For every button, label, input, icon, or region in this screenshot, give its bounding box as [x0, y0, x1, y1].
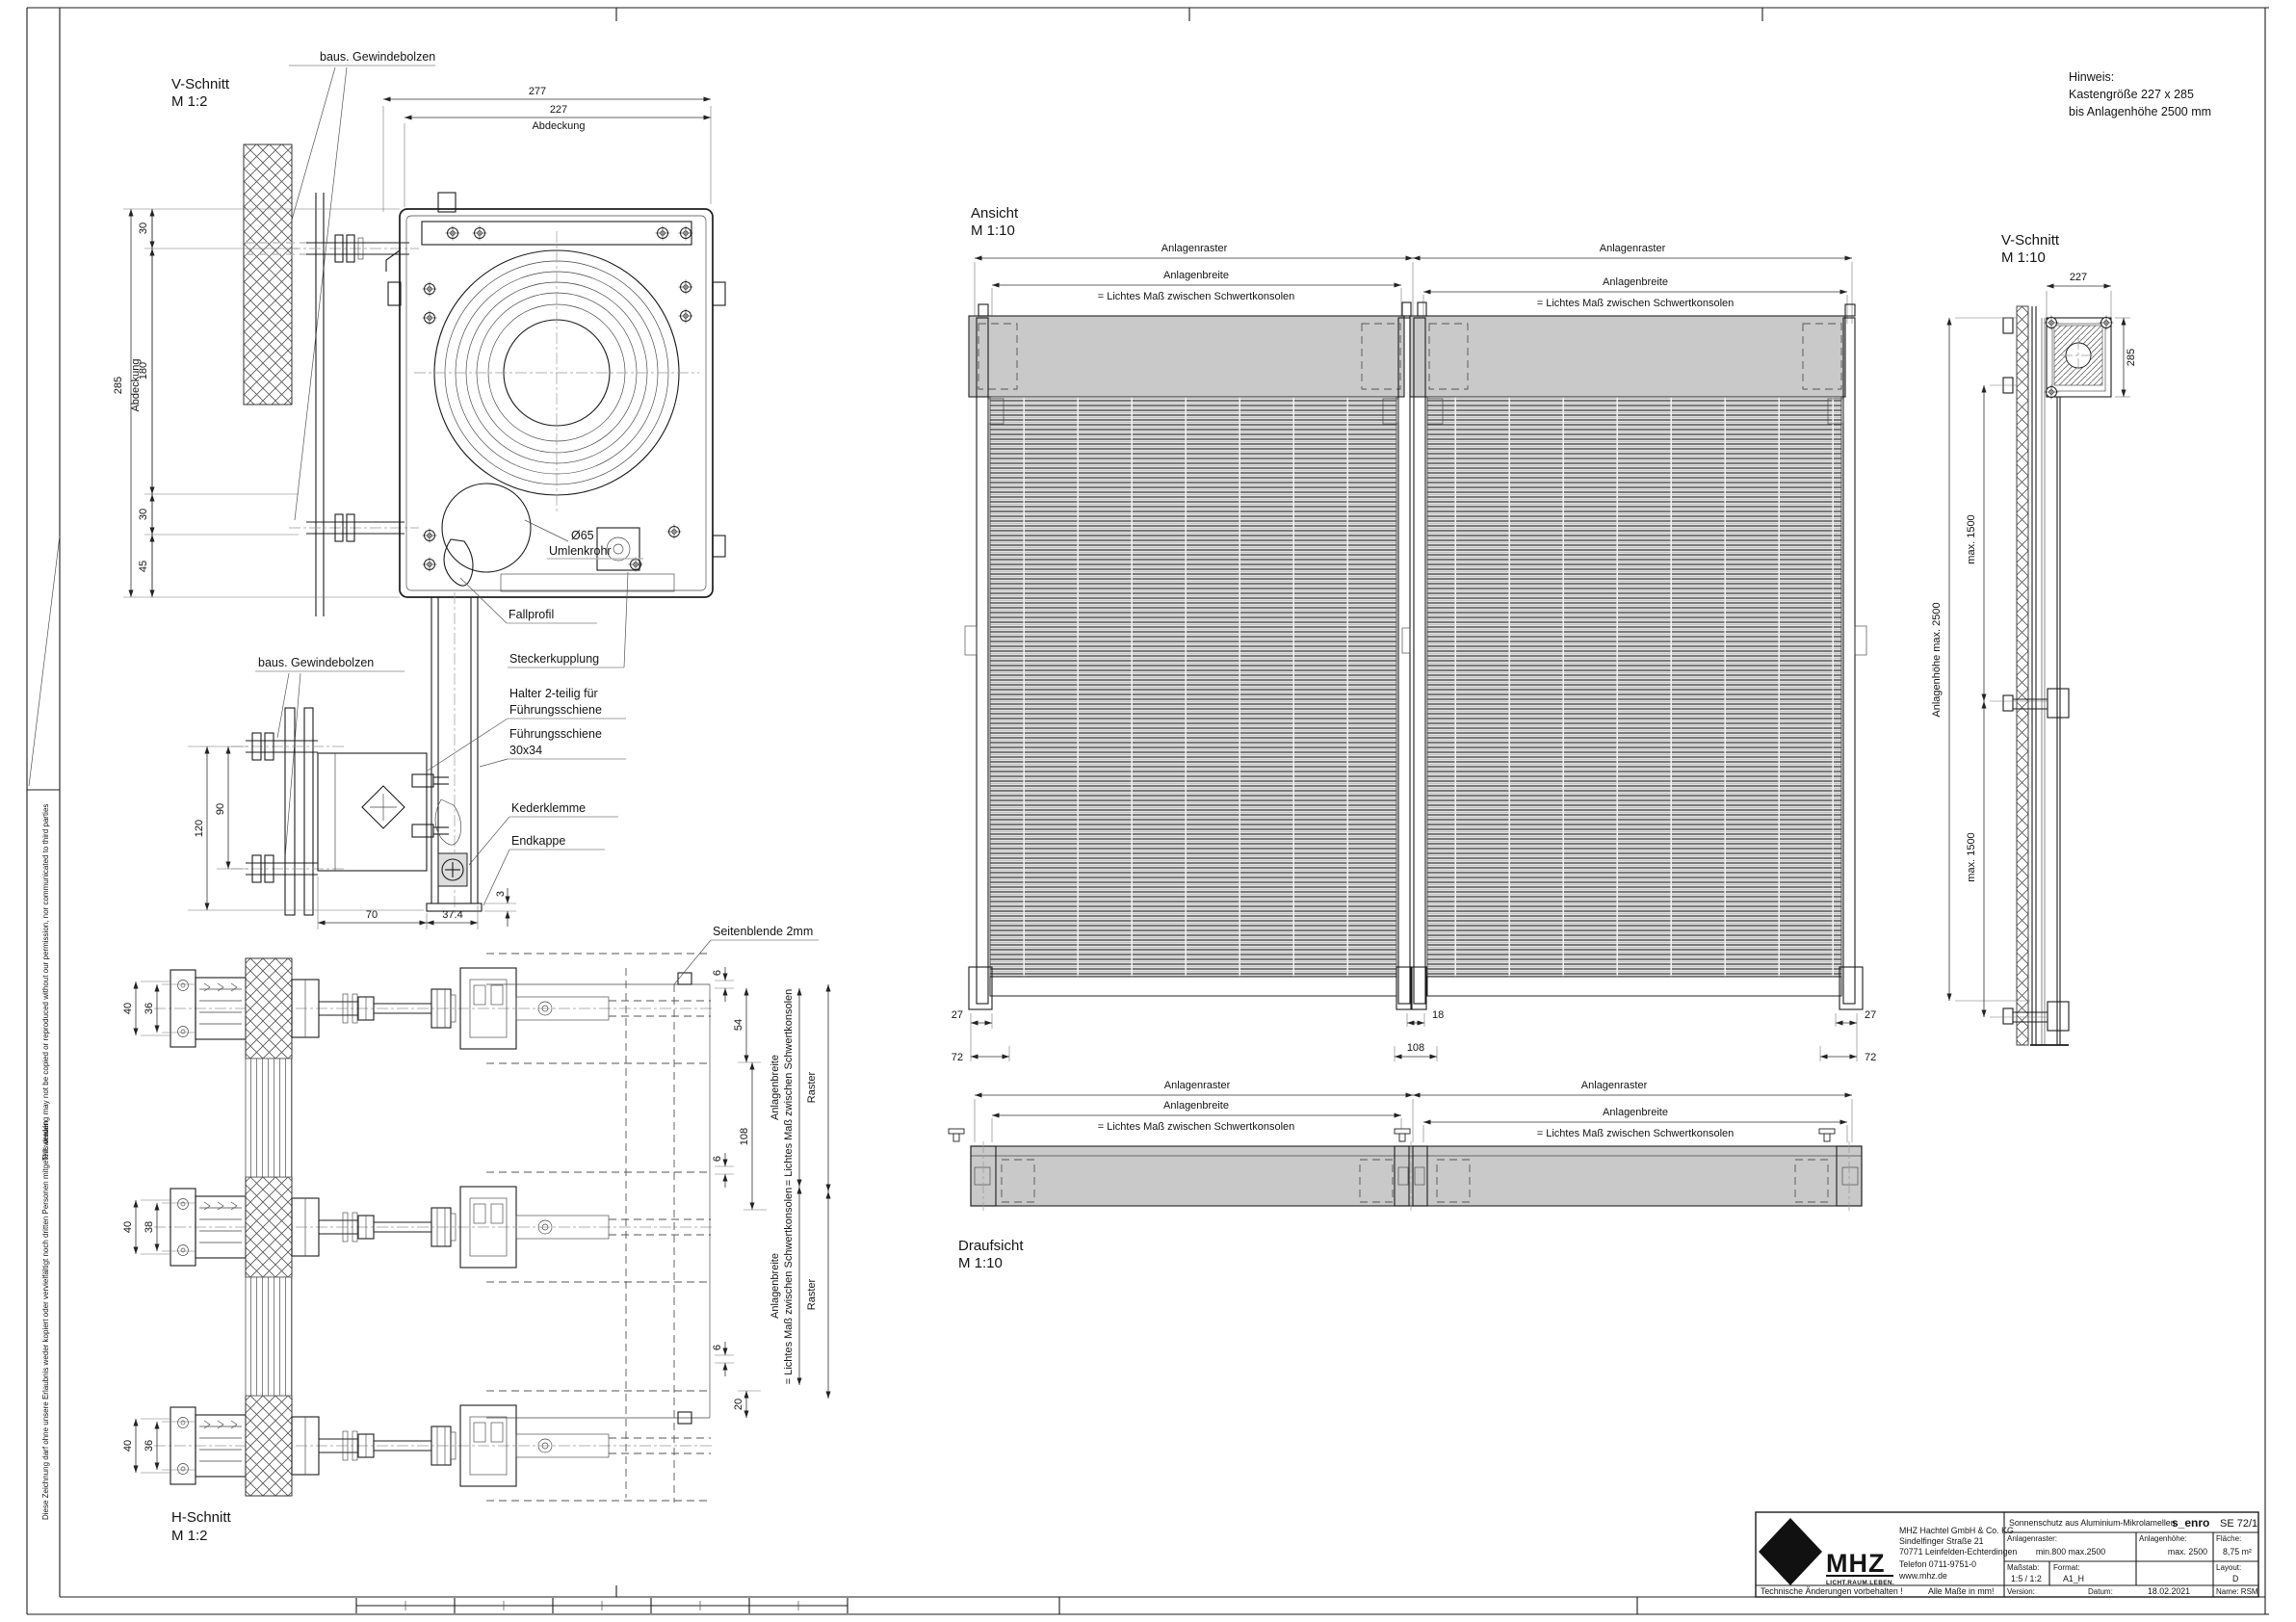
lamellen-screen-right [1427, 397, 1841, 977]
anlagenraster-value: min.800 max.2500 [2036, 1547, 2105, 1557]
dim-text: 108 [1407, 1042, 1424, 1054]
dim-text: 108 [739, 1128, 750, 1145]
view-scale: M 1:2 [171, 93, 208, 110]
view-scale: M 1:2 [171, 1528, 208, 1544]
dim-text: 6 [712, 1156, 723, 1162]
kasten-box-v110 [2045, 316, 2114, 400]
datum-label: Datum: [2088, 1587, 2113, 1596]
dim-anlagenhoehe: Anlagenhöhe max. 2500 [1931, 318, 2030, 1001]
massstab-label: Maßstab: [2007, 1563, 2039, 1572]
dim-text: 36 [143, 1440, 155, 1452]
dim-227-abdeckung: 227 Abdeckung [404, 104, 711, 207]
label-gewindebolzen: baus. Gewindebolzen [320, 50, 435, 64]
product-number: SE 72/1 [2220, 1518, 2257, 1530]
dim-text: = Lichtes Maß zwischen Schwertkonsolen [1098, 291, 1295, 302]
mhz-logo-tagline: LICHT.RAUM.LEBEN. [1826, 1580, 1894, 1586]
company-line: MHZ Hachtel GmbH & Co. KG [1899, 1526, 2014, 1535]
dim-227-v110: 227 [2047, 272, 2111, 318]
dim-text: 6 [712, 1345, 723, 1350]
company-link: www.mhz.de [1898, 1571, 1947, 1581]
layout-value: D [2232, 1574, 2238, 1583]
dim-text: 18 [1432, 1009, 1444, 1021]
dim-text: 70 [366, 909, 378, 921]
version-label: Version: [2007, 1587, 2035, 1596]
dim-text: = Lichtes Maß zwischen Schwertkonsolen [783, 1188, 795, 1385]
notice-text: Technische Änderungen vorbehalten ! [1761, 1586, 1903, 1596]
view-scale: M 1:10 [2001, 249, 2046, 266]
dim-text: 277 [529, 86, 546, 97]
label-seitenblende: Seitenblende 2mm [713, 925, 813, 938]
dim-text: 120 [194, 820, 205, 837]
dim-text: 20 [733, 1399, 744, 1410]
dim-text: 30 [138, 222, 149, 234]
dim-text: 40 [122, 1221, 134, 1233]
dim-text: Anlagenraster [1161, 243, 1228, 254]
dim-text: 54 [733, 1019, 744, 1031]
dim-text: 3 [495, 891, 507, 897]
dim-text: 37.4 [442, 909, 462, 921]
dim-text: Anlagenraster [1581, 1080, 1648, 1091]
dim-text: = Lichtes Maß zwischen Schwertkonsolen [783, 989, 795, 1187]
halter-bracket [318, 753, 449, 871]
layout-label: Layout: [2216, 1563, 2241, 1572]
dim-text: Raster [806, 1071, 818, 1103]
wall-section [244, 144, 292, 405]
dim-text: 285 [113, 377, 124, 394]
dim-text: 180 [138, 362, 149, 379]
wall-strip [2017, 306, 2028, 1045]
view-title: Ansicht [971, 205, 1019, 222]
copyright-note-en: This drawing may not be copied or reprod… [41, 804, 50, 1161]
dim-text: Raster [806, 1278, 818, 1310]
hinweis-line3: bis Anlagenhöhe 2500 mm [2069, 105, 2211, 118]
title-block: MHZ LICHT.RAUM.LEBEN. MHZ Hachtel GmbH &… [1756, 1512, 2258, 1597]
dim-text: Anlagenbreite [1163, 1100, 1229, 1112]
product-title: Sonnenschutz aus Aluminium-Mikrolamellen [2009, 1518, 2176, 1528]
dim-text: 40 [122, 1440, 134, 1452]
view-title: V-Schnitt [2001, 232, 2060, 249]
view-title: Draufsicht [958, 1238, 1024, 1254]
kasten-box [386, 193, 725, 597]
kasten-right [1410, 316, 1845, 397]
ansicht-top-dims: Anlagenraster Anlagenraster Anlagenbreit… [975, 243, 1852, 324]
dim-277: 277 [383, 86, 711, 212]
dim-text: = Lichtes Maß zwischen Schwertkonsolen [1537, 1128, 1735, 1139]
dim-text: 38 [143, 1221, 155, 1233]
view-title: H-Schnitt [171, 1509, 232, 1526]
product-code: s_enro [2172, 1516, 2209, 1530]
dim-text: 27 [952, 1009, 963, 1021]
umlenkrohr-circle [442, 484, 531, 572]
dim-text: Anlagenraster [1164, 1080, 1231, 1091]
company-line: 70771 Leinfelden-Echterdingen [1899, 1547, 2017, 1557]
label-halter-1: Halter 2-teilig für [509, 687, 598, 700]
dim-text: max. 1500 [1966, 514, 1977, 563]
dim-text: Anlagenbreite [1603, 1107, 1668, 1118]
dim-text: 72 [952, 1052, 963, 1063]
dim-text: Anlagenraster [1600, 243, 1666, 254]
dim-text: Abdeckung [532, 120, 585, 132]
view-fuehrungsschiene-detail: baus. Gewindebolzen [188, 592, 626, 929]
dim-text: 30 [138, 509, 149, 520]
label-steckerkupplung: Steckerkupplung [509, 652, 599, 666]
fallprofil-left [990, 977, 1396, 996]
draufsicht-dims: Anlagenraster Anlagenraster Anlagenbreit… [975, 1080, 1852, 1142]
dim-text: 90 [215, 803, 226, 815]
dim-text: Anlagenbreite [1163, 270, 1229, 281]
fold-crease [29, 536, 60, 786]
label-endkappe: Endkappe [511, 834, 565, 848]
dim-text: 40 [122, 1003, 134, 1014]
label-halter-2: Führungsschiene [509, 703, 602, 717]
dim-text: 27 [1865, 1009, 1876, 1021]
dim-text: 227 [550, 104, 567, 116]
hs-dims-right: 6 6 6 54 108 20 Anlagenbreite = Lichtes … [712, 967, 828, 1418]
view-scale: M 1:10 [958, 1255, 1003, 1271]
dim-text: 36 [143, 1003, 155, 1014]
dim-max1500: max. 1500 max. 1500 [1966, 385, 2048, 1017]
format-label: Format: [2053, 1563, 2080, 1572]
view-v-schnitt-m12: V-Schnitt M 1:2 baus. Gewindebolzen 277 … [113, 50, 725, 667]
lamellen-screen-left [990, 397, 1396, 977]
datum-value: 18.02.2021 [2148, 1586, 2190, 1596]
anlagenraster-label: Anlagenraster: [2007, 1534, 2057, 1543]
view-draufsicht: Anlagenraster Anlagenraster Anlagenbreit… [949, 1080, 1862, 1271]
dim-text: = Lichtes Maß zwischen Schwertkonsolen [1537, 298, 1735, 309]
kasten-left [969, 316, 1404, 397]
dim-text: 6 [712, 970, 723, 976]
hinweis-note: Hinweis: Kastengröße 227 x 285 bis Anlag… [2069, 70, 2211, 118]
dim-text: Anlagenhöhe max. 2500 [1931, 602, 1943, 717]
view-ansicht: Ansicht M 1:10 Anlagenraster Anlagenrast… [952, 205, 1877, 1063]
mhz-logo-text: MHZ [1826, 1549, 1885, 1578]
label-fallprofil: Fallprofil [509, 608, 554, 621]
hinweis-line2: Kastengröße 227 x 285 [2069, 88, 2194, 101]
label-schiene-2: 30x34 [509, 744, 542, 757]
format-value: A1_H [2063, 1574, 2084, 1583]
view-scale: M 1:10 [971, 222, 1015, 239]
view-title: V-Schnitt [171, 76, 230, 92]
dim-text: 227 [2070, 272, 2087, 283]
cad-drawing: Diese Zeichnung darf ohne unsere Erlaubn… [0, 0, 2296, 1622]
dim-text: Anlagenbreite [1603, 276, 1668, 288]
massstab-value: 1:5 / 1:2 [2011, 1574, 2042, 1583]
flaeche-label: Fläche: [2216, 1534, 2241, 1543]
company-line: Telefon 0711-9751-0 [1899, 1559, 1976, 1569]
label-umlenkrohr: Umlenkrohr [549, 544, 612, 558]
scale-ruler [356, 1598, 848, 1613]
dim-text: = Lichtes Maß zwischen Schwertkonsolen [1098, 1121, 1295, 1133]
view-v-schnitt-m110: V-Schnitt M 1:10 227 285 [1931, 232, 2137, 1045]
label-gewindebolzen-2: baus. Gewindebolzen [258, 656, 374, 669]
label-schiene-1: Führungsschiene [509, 727, 602, 741]
company-line: Sindelfinger Straße 21 [1899, 1536, 1984, 1546]
units-text: Alle Maße in mm! [1928, 1586, 1994, 1596]
draufsicht-strip [971, 1141, 1862, 1211]
ansicht-bottom-dims: 27 72 18 108 27 72 [952, 1009, 1877, 1063]
view-h-schnitt: 40 36 40 38 40 36 Seitenblende 2mm 6 6 6… [122, 925, 828, 1544]
label-kederklemme: Kederklemme [511, 801, 586, 815]
hinweis-line1: Hinweis: [2069, 70, 2114, 84]
name-value: Name: RSM [2216, 1587, 2258, 1596]
dim-120-90: 120 90 [188, 746, 424, 910]
dim-text: 285 [2126, 349, 2137, 366]
anlagenhoehe-value: max. 2500 [2168, 1547, 2207, 1557]
dim-text: Anlagenbreite [770, 1253, 781, 1319]
fallprofil-right [1427, 977, 1841, 996]
dim-text: max. 1500 [1966, 832, 1977, 881]
dim-text: 45 [138, 561, 149, 572]
drawing-sheet: Diese Zeichnung darf ohne unsere Erlaubn… [0, 0, 2296, 1622]
label-o65: Ø65 [571, 529, 594, 542]
dim-text: Anlagenbreite [770, 1055, 781, 1120]
flaeche-value: 8,75 m² [2223, 1547, 2252, 1557]
copyright-note-de: Diese Zeichnung darf ohne unsere Erlaubn… [41, 1121, 50, 1520]
anlagenhoehe-label: Anlagenhöhe: [2139, 1534, 2186, 1543]
dim-text: 72 [1865, 1052, 1876, 1063]
dim-285-v110: 285 [2115, 318, 2137, 397]
